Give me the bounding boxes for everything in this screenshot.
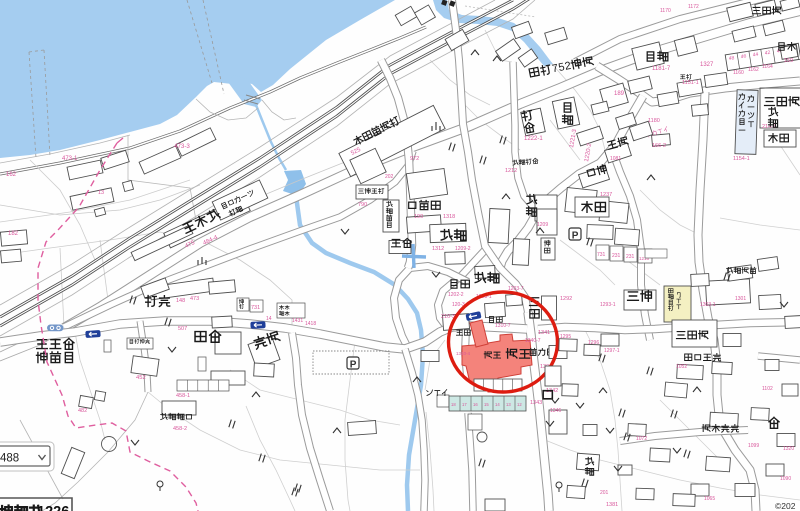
svg-text:1072: 1072 bbox=[636, 436, 647, 442]
svg-text:1065: 1065 bbox=[704, 496, 715, 502]
svg-text:473-1: 473-1 bbox=[62, 156, 78, 162]
svg-text:458-2: 458-2 bbox=[173, 426, 187, 432]
svg-text:©202: ©202 bbox=[775, 501, 796, 511]
svg-text:189: 189 bbox=[614, 91, 625, 97]
svg-text:458-1: 458-1 bbox=[176, 393, 190, 399]
svg-text:1301: 1301 bbox=[735, 296, 746, 302]
svg-text:482: 482 bbox=[78, 408, 87, 414]
svg-text:1099: 1099 bbox=[748, 443, 759, 449]
svg-text:1418: 1418 bbox=[305, 321, 316, 327]
svg-text:507: 507 bbox=[178, 326, 187, 332]
svg-text:1162: 1162 bbox=[748, 67, 759, 73]
svg-text:1312: 1312 bbox=[432, 246, 444, 252]
svg-text:1296: 1296 bbox=[588, 340, 599, 346]
svg-text:202: 202 bbox=[385, 174, 394, 180]
svg-text:1160: 1160 bbox=[733, 70, 744, 76]
svg-text:1297-1: 1297-1 bbox=[604, 348, 620, 354]
svg-text:731: 731 bbox=[597, 252, 606, 258]
svg-text:1381: 1381 bbox=[606, 502, 618, 508]
svg-text:1212: 1212 bbox=[505, 168, 517, 174]
svg-text:1431: 1431 bbox=[292, 318, 303, 324]
svg-text:1310-4: 1310-4 bbox=[456, 351, 471, 356]
svg-text:1226: 1226 bbox=[37, 504, 69, 511]
svg-text:1293-1: 1293-1 bbox=[600, 302, 616, 308]
svg-text:1295: 1295 bbox=[560, 334, 571, 340]
svg-text:16: 16 bbox=[473, 402, 478, 407]
svg-text:1181-7: 1181-7 bbox=[652, 66, 671, 72]
svg-text:159: 159 bbox=[784, 58, 793, 64]
svg-text:1209-2: 1209-2 bbox=[455, 246, 471, 252]
svg-text:1090: 1090 bbox=[780, 476, 791, 482]
svg-text:1102: 1102 bbox=[762, 386, 773, 392]
svg-text:17: 17 bbox=[462, 402, 467, 407]
svg-text:1341: 1341 bbox=[538, 330, 550, 336]
svg-text:14: 14 bbox=[266, 316, 272, 322]
svg-text:1202-2: 1202-2 bbox=[448, 292, 464, 298]
svg-text:1172: 1172 bbox=[688, 4, 699, 10]
svg-text:12: 12 bbox=[517, 402, 522, 407]
svg-text:13: 13 bbox=[98, 190, 104, 196]
svg-text:182: 182 bbox=[8, 231, 19, 237]
svg-text:1081: 1081 bbox=[610, 156, 621, 162]
svg-text:14: 14 bbox=[495, 402, 500, 407]
svg-text:148: 148 bbox=[176, 298, 185, 304]
svg-text:488: 488 bbox=[0, 453, 19, 465]
svg-text:231: 231 bbox=[612, 253, 621, 259]
svg-text:201: 201 bbox=[600, 490, 609, 496]
svg-text:1151-1: 1151-1 bbox=[682, 80, 699, 86]
svg-text:1237: 1237 bbox=[600, 192, 612, 198]
svg-text:972: 972 bbox=[410, 156, 419, 162]
svg-text:P: P bbox=[350, 359, 357, 370]
svg-text:473-3: 473-3 bbox=[174, 143, 190, 150]
svg-text:1154-1: 1154-1 bbox=[733, 156, 750, 162]
svg-text:1292: 1292 bbox=[560, 296, 572, 302]
svg-text:1222-1: 1222-1 bbox=[524, 136, 543, 142]
svg-text:731: 731 bbox=[251, 305, 260, 311]
svg-text:190: 190 bbox=[414, 214, 423, 220]
svg-text:P: P bbox=[572, 230, 579, 241]
svg-text:1203-7: 1203-7 bbox=[508, 286, 524, 292]
svg-text:1346: 1346 bbox=[550, 408, 561, 414]
svg-text:231: 231 bbox=[626, 254, 635, 260]
svg-text:1327: 1327 bbox=[700, 62, 714, 68]
svg-text:1318: 1318 bbox=[443, 214, 455, 220]
svg-text:452: 452 bbox=[136, 375, 146, 381]
svg-text:473: 473 bbox=[190, 296, 199, 302]
svg-text:1303-1: 1303-1 bbox=[700, 302, 716, 308]
svg-text:1170: 1170 bbox=[660, 8, 671, 14]
svg-text:15: 15 bbox=[484, 402, 489, 407]
svg-text:166-2: 166-2 bbox=[652, 143, 666, 149]
svg-text:1180: 1180 bbox=[648, 118, 660, 124]
svg-text:1209: 1209 bbox=[537, 222, 548, 228]
svg-text:1320: 1320 bbox=[783, 446, 794, 452]
svg-text:1052: 1052 bbox=[676, 364, 687, 370]
svg-text:13: 13 bbox=[506, 402, 511, 407]
svg-text:1164: 1164 bbox=[762, 64, 773, 70]
svg-text:790: 790 bbox=[358, 202, 367, 208]
svg-text:1340-7: 1340-7 bbox=[525, 338, 541, 344]
svg-text:1310-7: 1310-7 bbox=[495, 323, 511, 329]
svg-text:1343: 1343 bbox=[530, 400, 542, 406]
svg-text:162: 162 bbox=[6, 172, 17, 178]
svg-text:18: 18 bbox=[451, 402, 456, 407]
